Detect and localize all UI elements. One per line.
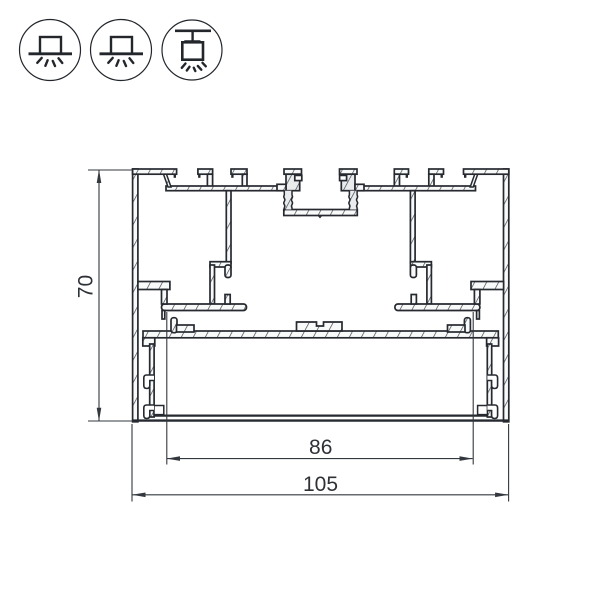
svg-text:105: 105 bbox=[303, 473, 338, 496]
svg-text:70: 70 bbox=[74, 275, 97, 298]
svg-text:86: 86 bbox=[309, 436, 332, 459]
